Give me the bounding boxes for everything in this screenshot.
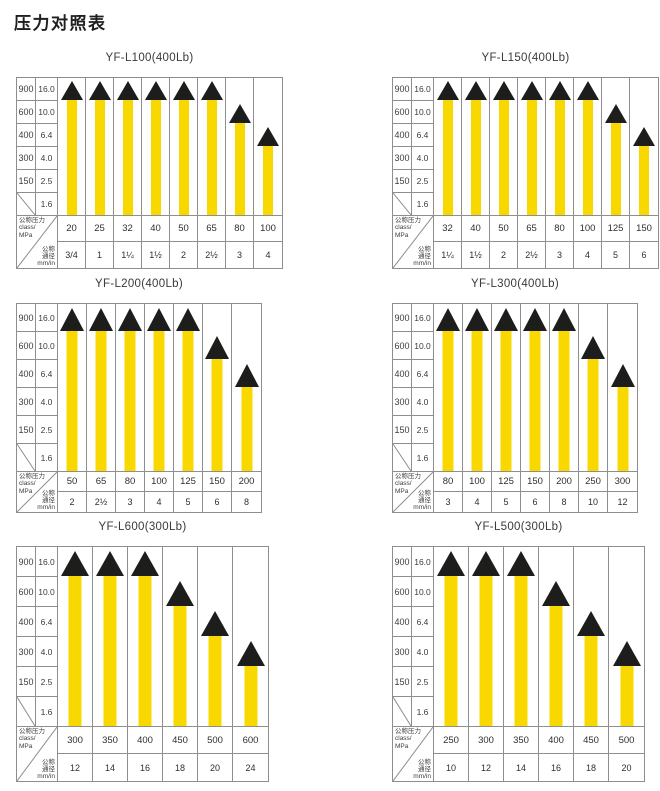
data-column: 321¼: [114, 78, 142, 268]
pressure-bar: [639, 145, 649, 215]
bar-plot-cell: [198, 547, 232, 727]
bar-plot-cell: [58, 304, 86, 472]
pressure-axis-label-line: MPa: [395, 232, 421, 239]
pressure-axis-label: 公称压力class/MPa: [19, 217, 45, 239]
data-column: 40016: [128, 547, 163, 781]
class-tick: [393, 444, 412, 472]
mpa-tick: 4.0: [36, 147, 58, 170]
diameter-axis-label-line: 公称: [413, 759, 431, 766]
chart-title: YF-L200(400Lb): [16, 278, 262, 296]
diameter-axis-label-line: mm/in: [37, 504, 55, 511]
dn-mm-cell: 125: [492, 472, 520, 492]
pressure-bar: [263, 145, 273, 215]
data-column: 45018: [163, 547, 198, 781]
pressure-bar: [559, 330, 570, 471]
rating-triangle: [465, 308, 489, 331]
pressure-bar: [104, 575, 117, 726]
mpa-tick: 16.0: [36, 304, 58, 332]
bar-plot-cell: [602, 78, 629, 216]
diagonal-line-down: [17, 697, 35, 726]
axis-row: 90016.0: [393, 547, 434, 577]
dn-in-cell: 2: [170, 242, 197, 268]
dn-in-cell: 8: [550, 492, 578, 512]
rating-triangle: [237, 641, 265, 666]
mpa-tick: 1.6: [412, 697, 434, 727]
mpa-tick: 2.5: [36, 667, 58, 697]
mpa-tick: 16.0: [412, 547, 434, 577]
diameter-axis-label-line: 通径: [37, 253, 55, 260]
data-column: 25010: [579, 304, 608, 512]
dn-mm-cell: 350: [93, 727, 127, 754]
rating-triangle: [201, 611, 229, 636]
data-column: 1506: [630, 78, 658, 268]
data-column: 1255: [492, 304, 521, 512]
data-column: 803: [546, 78, 574, 268]
axis-row: 90016.0: [393, 304, 434, 332]
pressure-chart-yf-l150: YF-L150(400Lb)90016.060010.04006.43004.0…: [392, 52, 659, 269]
class-tick: 600: [17, 101, 36, 124]
axis-row: 90016.0: [17, 304, 58, 332]
dn-in-cell: 2½: [518, 242, 545, 268]
dn-in-cell: 8: [232, 492, 261, 512]
mpa-tick: 16.0: [36, 547, 58, 577]
dn-mm-cell: 50: [490, 216, 517, 242]
class-tick: 900: [17, 78, 36, 101]
mpa-tick: 10.0: [412, 577, 434, 607]
bar-plot-cell: [546, 78, 573, 216]
bar-plot-cell: [630, 78, 658, 216]
axis-row: 4006.4: [393, 607, 434, 637]
axis-row: 1.6: [17, 697, 58, 727]
diameter-axis-label-line: mm/in: [413, 504, 431, 511]
mpa-tick: 10.0: [412, 101, 434, 124]
axis-row: 3004.0: [393, 388, 434, 416]
class-tick: 600: [393, 101, 412, 124]
rating-triangle: [131, 551, 159, 576]
dn-in-cell: 3/4: [58, 242, 85, 268]
rating-triangle: [613, 641, 641, 666]
class-tick: [393, 193, 412, 216]
mpa-tick: 1.6: [412, 193, 434, 216]
data-column: 60024: [233, 547, 268, 781]
class-tick: 400: [17, 124, 36, 147]
data-columns: 321¼401½502652½803100412551506: [434, 78, 658, 268]
dn-in-cell: 6: [203, 492, 231, 512]
dn-mm-cell: 65: [518, 216, 545, 242]
bar-plot-cell: [142, 78, 169, 216]
dn-in-cell: 10: [434, 754, 468, 781]
chart-title: YF-L100(400Lb): [16, 52, 283, 70]
pressure-axis-label-line: class/: [395, 735, 421, 742]
rating-triangle: [465, 81, 487, 100]
dn-mm-cell: 400: [539, 727, 573, 754]
data-column: 803: [116, 304, 145, 512]
pressure-bar: [174, 605, 187, 726]
mpa-tick: 4.0: [412, 637, 434, 667]
axis-row: 4006.4: [17, 607, 58, 637]
mpa-tick: 10.0: [36, 101, 58, 124]
dn-in-cell: 1¼: [114, 242, 141, 268]
data-column: 1004: [254, 78, 282, 268]
pressure-table: 90016.060010.04006.43004.01502.51.6公称压力c…: [392, 303, 638, 513]
class-tick: 150: [393, 667, 412, 697]
pressure-bar: [550, 605, 563, 726]
dn-mm-cell: 65: [87, 472, 115, 492]
dn-mm-cell: 50: [58, 472, 86, 492]
pressure-bar: [235, 122, 245, 215]
dn-in-cell: 4: [574, 242, 601, 268]
dn-mm-cell: 25: [86, 216, 113, 242]
rating-triangle: [145, 81, 167, 100]
dn-in-cell: 2½: [87, 492, 115, 512]
axis-row: 3004.0: [393, 637, 434, 667]
bar-plot-cell: [128, 547, 162, 727]
chart-title: YF-L500(300Lb): [392, 521, 645, 539]
dn-mm-cell: 400: [128, 727, 162, 754]
pressure-axis-label-line: 公称压力: [395, 473, 421, 480]
data-columns: 250103001235014400164501850020: [434, 547, 644, 781]
chart-title: YF-L300(400Lb): [392, 278, 638, 296]
bar-plot-cell: [233, 547, 268, 727]
class-tick: 300: [17, 637, 36, 667]
rating-triangle: [437, 81, 459, 100]
class-tick: 900: [393, 304, 412, 332]
axis-column: 90016.060010.04006.43004.01502.51.6公称压力c…: [393, 304, 434, 512]
bar-plot-cell: [163, 547, 197, 727]
mpa-tick: 4.0: [412, 388, 434, 416]
dn-mm-cell: 450: [163, 727, 197, 754]
bar-plot-cell: [58, 78, 85, 216]
axis-corner: 公称压力class/MPa公称通径mm/in: [393, 727, 434, 781]
dn-in-cell: 24: [233, 754, 268, 781]
bar-plot-cell: [174, 304, 202, 472]
data-column: 35014: [504, 547, 539, 781]
diameter-axis-label: 公称通径mm/in: [37, 759, 55, 780]
mpa-tick: 2.5: [36, 170, 58, 193]
pressure-table: 90016.060010.04006.43004.01502.51.6公称压力c…: [16, 77, 283, 269]
class-tick: 600: [17, 332, 36, 360]
axis-row: 1.6: [17, 193, 58, 216]
mpa-tick: 16.0: [412, 78, 434, 101]
data-column: 401½: [462, 78, 490, 268]
mpa-tick: 1.6: [36, 697, 58, 727]
data-column: 251: [86, 78, 114, 268]
pressure-bar: [125, 330, 136, 471]
diagonal-line-down: [17, 444, 35, 471]
pressure-bar: [183, 330, 194, 471]
mpa-tick: 2.5: [412, 416, 434, 444]
class-tick: 150: [393, 170, 412, 193]
data-columns: 203/4251321¼401½502652½8031004: [58, 78, 282, 268]
axis-row: 1502.5: [393, 667, 434, 697]
dn-mm-cell: 100: [463, 472, 491, 492]
axis-column: 90016.060010.04006.43004.01502.51.6公称压力c…: [393, 78, 434, 268]
diameter-axis-label-line: 公称: [413, 246, 431, 253]
data-column: 401½: [142, 78, 170, 268]
dn-in-cell: 1½: [142, 242, 169, 268]
pressure-table: 90016.060010.04006.43004.01502.51.6公称压力c…: [392, 77, 659, 269]
axis-row: 90016.0: [393, 78, 434, 101]
pressure-chart-yf-l100: YF-L100(400Lb)90016.060010.04006.43004.0…: [16, 52, 283, 269]
class-tick: [17, 444, 36, 472]
diameter-axis-label-line: 通径: [37, 497, 55, 504]
data-column: 502: [170, 78, 198, 268]
dn-in-cell: 12: [58, 754, 92, 781]
pressure-axis-label: 公称压力class/MPa: [19, 728, 45, 750]
data-column: 652½: [198, 78, 226, 268]
dn-in-cell: 1¼: [434, 242, 461, 268]
bar-plot-cell: [492, 304, 520, 472]
pressure-table: 90016.060010.04006.43004.01502.51.6公称压力c…: [16, 303, 262, 513]
pressure-axis-label-line: class/: [395, 480, 421, 487]
dn-in-cell: 1: [86, 242, 113, 268]
data-column: 2008: [232, 304, 261, 512]
axis-row: 4006.4: [393, 124, 434, 147]
bar-plot-cell: [490, 78, 517, 216]
rating-triangle: [176, 308, 200, 331]
axis-corner: 公称压力class/MPa公称通径mm/in: [17, 472, 58, 512]
mpa-tick: 6.4: [412, 360, 434, 388]
class-tick: 150: [17, 170, 36, 193]
bar-plot-cell: [232, 304, 261, 472]
dn-in-cell: 10: [579, 492, 607, 512]
dn-in-cell: 18: [163, 754, 197, 781]
class-tick: 600: [393, 577, 412, 607]
axis-row: 3004.0: [17, 388, 58, 416]
axis-row: 60010.0: [17, 332, 58, 360]
dn-mm-cell: 300: [58, 727, 92, 754]
class-tick: 600: [393, 332, 412, 360]
axis-row: 1.6: [393, 697, 434, 727]
axis-row: 4006.4: [17, 360, 58, 388]
dn-in-cell: 20: [609, 754, 644, 781]
axis-row: 1.6: [393, 193, 434, 216]
data-column: 1506: [203, 304, 232, 512]
pressure-bar: [530, 330, 541, 471]
mpa-tick: 16.0: [36, 78, 58, 101]
dn-mm-cell: 200: [232, 472, 261, 492]
class-tick: 400: [393, 124, 412, 147]
chart-title: YF-L150(400Lb): [392, 52, 659, 70]
pressure-axis-label: 公称压力class/MPa: [395, 217, 421, 239]
bar-plot-cell: [58, 547, 92, 727]
dn-mm-cell: 125: [174, 472, 202, 492]
rating-triangle: [436, 308, 460, 331]
axis-row: 3004.0: [393, 147, 434, 170]
class-tick: 300: [17, 388, 36, 416]
data-column: 502: [58, 304, 87, 512]
pressure-bar: [212, 358, 223, 471]
mpa-tick: 6.4: [36, 360, 58, 388]
mpa-tick: 6.4: [412, 607, 434, 637]
mpa-tick: 1.6: [412, 444, 434, 472]
pressure-axis-label-line: MPa: [19, 743, 45, 750]
pressure-axis-label-line: 公称压力: [19, 473, 45, 480]
dn-mm-cell: 300: [608, 472, 637, 492]
class-tick: 150: [17, 416, 36, 444]
data-column: 1004: [574, 78, 602, 268]
pressure-bar: [555, 99, 565, 215]
bar-plot-cell: [254, 78, 282, 216]
data-column: 502: [490, 78, 518, 268]
rating-triangle: [205, 336, 229, 359]
rating-triangle: [577, 81, 599, 100]
dn-mm-cell: 20: [58, 216, 85, 242]
bar-plot-cell: [574, 547, 608, 727]
diameter-axis-label: 公称通径mm/in: [413, 759, 431, 780]
data-column: 1004: [145, 304, 174, 512]
bar-plot-cell: [463, 304, 491, 472]
dn-in-cell: 2: [490, 242, 517, 268]
class-tick: [393, 697, 412, 727]
dn-mm-cell: 80: [226, 216, 253, 242]
pressure-bar: [501, 330, 512, 471]
rating-triangle: [96, 551, 124, 576]
mpa-tick: 1.6: [36, 193, 58, 216]
rating-triangle: [166, 581, 194, 606]
pressure-bar: [244, 665, 257, 726]
data-column: 652½: [518, 78, 546, 268]
pressure-chart-yf-l600: YF-L600(300Lb)90016.060010.04006.43004.0…: [16, 521, 269, 782]
axis-row: 60010.0: [393, 332, 434, 360]
axis-row: 60010.0: [17, 577, 58, 607]
pressure-bar: [499, 99, 509, 215]
dn-mm-cell: 40: [142, 216, 169, 242]
dn-mm-cell: 150: [521, 472, 549, 492]
dn-in-cell: 16: [128, 754, 162, 781]
axis-corner: 公称压力class/MPa公称通径mm/in: [393, 216, 434, 268]
data-column: 2008: [550, 304, 579, 512]
rating-triangle: [494, 308, 518, 331]
dn-mm-cell: 80: [434, 472, 462, 492]
dn-in-cell: 3: [116, 492, 144, 512]
diameter-axis-label-line: 公称: [37, 246, 55, 253]
diameter-axis-label-line: 通径: [413, 497, 431, 504]
dn-in-cell: 3: [434, 492, 462, 512]
dn-in-cell: 2½: [198, 242, 225, 268]
pressure-bar: [96, 330, 107, 471]
class-tick: 400: [393, 360, 412, 388]
bar-plot-cell: [434, 78, 461, 216]
bar-plot-cell: [87, 304, 115, 472]
rating-triangle: [89, 308, 113, 331]
diameter-axis-label-line: mm/in: [413, 260, 431, 267]
rating-triangle: [549, 81, 571, 100]
rating-triangle: [229, 104, 251, 123]
class-tick: 300: [393, 147, 412, 170]
dn-in-cell: 2: [58, 492, 86, 512]
bar-plot-cell: [434, 547, 468, 727]
rating-triangle: [117, 81, 139, 100]
axis-column: 90016.060010.04006.43004.01502.51.6公称压力c…: [17, 304, 58, 512]
bar-plot-cell: [504, 547, 538, 727]
dn-in-cell: 18: [574, 754, 608, 781]
class-tick: 900: [393, 78, 412, 101]
dn-in-cell: 1½: [462, 242, 489, 268]
dn-mm-cell: 100: [145, 472, 173, 492]
bar-plot-cell: [521, 304, 549, 472]
dn-mm-cell: 500: [609, 727, 644, 754]
pressure-axis-label-line: class/: [19, 480, 45, 487]
pressure-chart-yf-l300: YF-L300(400Lb)90016.060010.04006.43004.0…: [392, 278, 638, 513]
diagonal-line-down: [393, 193, 411, 215]
diameter-axis-label-line: 通径: [413, 253, 431, 260]
bar-plot-cell: [579, 304, 607, 472]
dn-in-cell: 14: [93, 754, 127, 781]
dn-mm-cell: 250: [579, 472, 607, 492]
axis-row: 60010.0: [393, 101, 434, 124]
bar-plot-cell: [469, 547, 503, 727]
pressure-bar: [207, 99, 217, 215]
axis-row: 3004.0: [17, 637, 58, 667]
pressure-axis-label-line: 公称压力: [19, 728, 45, 735]
pressure-bar: [67, 99, 77, 215]
class-tick: 150: [17, 667, 36, 697]
data-column: 1506: [521, 304, 550, 512]
pressure-bar: [123, 99, 133, 215]
pressure-bar: [69, 575, 82, 726]
axis-row: 1.6: [17, 444, 58, 472]
rating-triangle: [235, 364, 259, 387]
data-column: 50020: [609, 547, 644, 781]
data-columns: 80310041255150620082501030012: [434, 304, 637, 512]
mpa-tick: 4.0: [412, 147, 434, 170]
axis-row: 90016.0: [17, 78, 58, 101]
diameter-axis-label-line: mm/in: [37, 260, 55, 267]
data-columns: 502652½8031004125515062008: [58, 304, 261, 512]
pressure-bar: [471, 99, 481, 215]
class-tick: 300: [393, 637, 412, 667]
data-column: 803: [434, 304, 463, 512]
mpa-tick: 6.4: [36, 607, 58, 637]
mpa-tick: 6.4: [412, 124, 434, 147]
rating-triangle: [61, 551, 89, 576]
diameter-axis-label-line: 公称: [37, 759, 55, 766]
class-tick: 400: [17, 360, 36, 388]
bar-plot-cell: [116, 304, 144, 472]
dn-mm-cell: 200: [550, 472, 578, 492]
chart-title: YF-L600(300Lb): [16, 521, 269, 539]
pressure-bar: [154, 330, 165, 471]
data-column: 1004: [463, 304, 492, 512]
dn-in-cell: 5: [602, 242, 629, 268]
dn-mm-cell: 600: [233, 727, 268, 754]
rating-triangle: [173, 81, 195, 100]
dn-in-cell: 3: [226, 242, 253, 268]
bar-plot-cell: [198, 78, 225, 216]
pressure-chart-yf-l200: YF-L200(400Lb)90016.060010.04006.43004.0…: [16, 278, 262, 513]
axis-column: 90016.060010.04006.43004.01502.51.6公称压力c…: [393, 547, 434, 781]
pressure-bar: [445, 575, 458, 726]
class-tick: 900: [17, 304, 36, 332]
data-column: 35014: [93, 547, 128, 781]
dn-mm-cell: 40: [462, 216, 489, 242]
rating-triangle: [147, 308, 171, 331]
axis-column: 90016.060010.04006.43004.01502.51.6公称压力c…: [17, 547, 58, 781]
bar-plot-cell: [609, 547, 644, 727]
rating-triangle: [472, 551, 500, 576]
bar-plot-cell: [518, 78, 545, 216]
class-tick: 300: [17, 147, 36, 170]
mpa-tick: 2.5: [36, 416, 58, 444]
bar-plot-cell: [86, 78, 113, 216]
data-column: 25010: [434, 547, 469, 781]
dn-in-cell: 4: [145, 492, 173, 512]
dn-mm-cell: 32: [114, 216, 141, 242]
dn-in-cell: 12: [608, 492, 637, 512]
data-column: 50020: [198, 547, 233, 781]
axis-row: 1502.5: [17, 416, 58, 444]
